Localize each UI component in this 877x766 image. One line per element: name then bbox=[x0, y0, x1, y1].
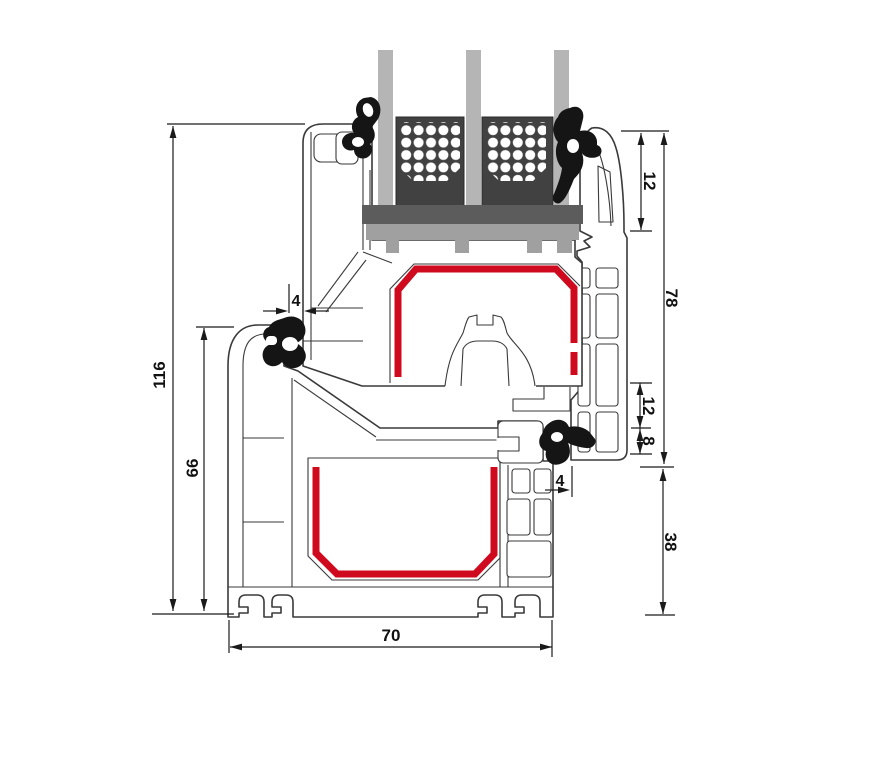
frame-gasket-groove-block bbox=[498, 421, 543, 463]
gasket-slot bbox=[266, 336, 277, 345]
arrow-left-icon bbox=[230, 644, 242, 651]
arrow-up-icon bbox=[661, 133, 668, 145]
sash-outer-chamber bbox=[596, 294, 618, 338]
window-cross-section-diagram: 116 66 4 12 78 bbox=[0, 0, 877, 766]
spacer-desiccant-dots bbox=[486, 122, 546, 181]
frame-chamber bbox=[507, 541, 551, 577]
arrow-up-icon bbox=[170, 126, 177, 138]
dimension-frame-face-height: 38 bbox=[660, 469, 680, 614]
arrow-up-icon bbox=[637, 383, 644, 395]
frame-chamber bbox=[512, 469, 530, 493]
dim-label: 12 bbox=[640, 172, 659, 191]
glazing-support-block bbox=[366, 224, 579, 240]
dim-label: 4 bbox=[292, 293, 301, 310]
arrow-down-icon bbox=[661, 452, 668, 464]
dimension-overlap-top: 12 bbox=[638, 133, 659, 230]
frame-chamber bbox=[534, 499, 551, 535]
dim-label: 66 bbox=[183, 459, 202, 478]
glass-pane bbox=[466, 50, 481, 210]
glazing-block-foot bbox=[527, 240, 542, 253]
sash-outer-chamber bbox=[596, 344, 618, 406]
gasket-hole bbox=[567, 139, 579, 153]
dimension-lower-height: 66 bbox=[183, 328, 207, 611]
diagram-canvas: 116 66 4 12 78 bbox=[0, 0, 877, 766]
dimension-rebate-mid: 12 bbox=[637, 383, 658, 428]
arrow-down-icon bbox=[638, 218, 645, 230]
arrow-right-icon bbox=[276, 308, 288, 315]
dimension-gasket-groove: 8 bbox=[637, 428, 658, 454]
gasket-hole bbox=[352, 137, 364, 147]
spacer-desiccant-dots bbox=[400, 122, 460, 181]
gasket-hole bbox=[282, 337, 298, 351]
glazing-bridge-bar bbox=[362, 205, 583, 224]
sash-outer-chamber bbox=[596, 412, 618, 452]
arrow-up-icon bbox=[201, 328, 208, 340]
arrow-up-icon bbox=[660, 469, 667, 481]
gasket-hole bbox=[551, 432, 563, 442]
dimension-build-depth: 70 bbox=[230, 626, 552, 650]
dim-label: 78 bbox=[662, 289, 681, 308]
dim-label: 8 bbox=[639, 436, 658, 445]
frame-chamber bbox=[507, 499, 530, 535]
glazing-block-foot bbox=[386, 240, 399, 253]
sash-outer-chamber bbox=[596, 268, 618, 288]
dim-label: 38 bbox=[661, 533, 680, 552]
arrow-up-icon bbox=[638, 133, 645, 145]
arrow-down-icon bbox=[170, 599, 177, 611]
dim-label: 12 bbox=[639, 397, 658, 416]
dim-label: 116 bbox=[150, 361, 169, 388]
dimension-total-height: 116 bbox=[150, 126, 176, 611]
dimension-sash-face-height: 78 bbox=[661, 133, 681, 464]
glazing-block-foot bbox=[557, 240, 572, 253]
glazing-unit bbox=[362, 50, 583, 253]
glazing-block-foot bbox=[455, 240, 469, 253]
arrow-right-icon bbox=[540, 644, 552, 651]
dim-label: 4 bbox=[556, 473, 565, 490]
arrow-down-icon bbox=[201, 599, 208, 611]
dim-label: 70 bbox=[382, 626, 401, 645]
glass-pane bbox=[378, 50, 393, 210]
arrow-down-icon bbox=[637, 416, 644, 428]
arrow-down-icon bbox=[660, 602, 667, 614]
sash-bottom-hook bbox=[513, 387, 570, 411]
